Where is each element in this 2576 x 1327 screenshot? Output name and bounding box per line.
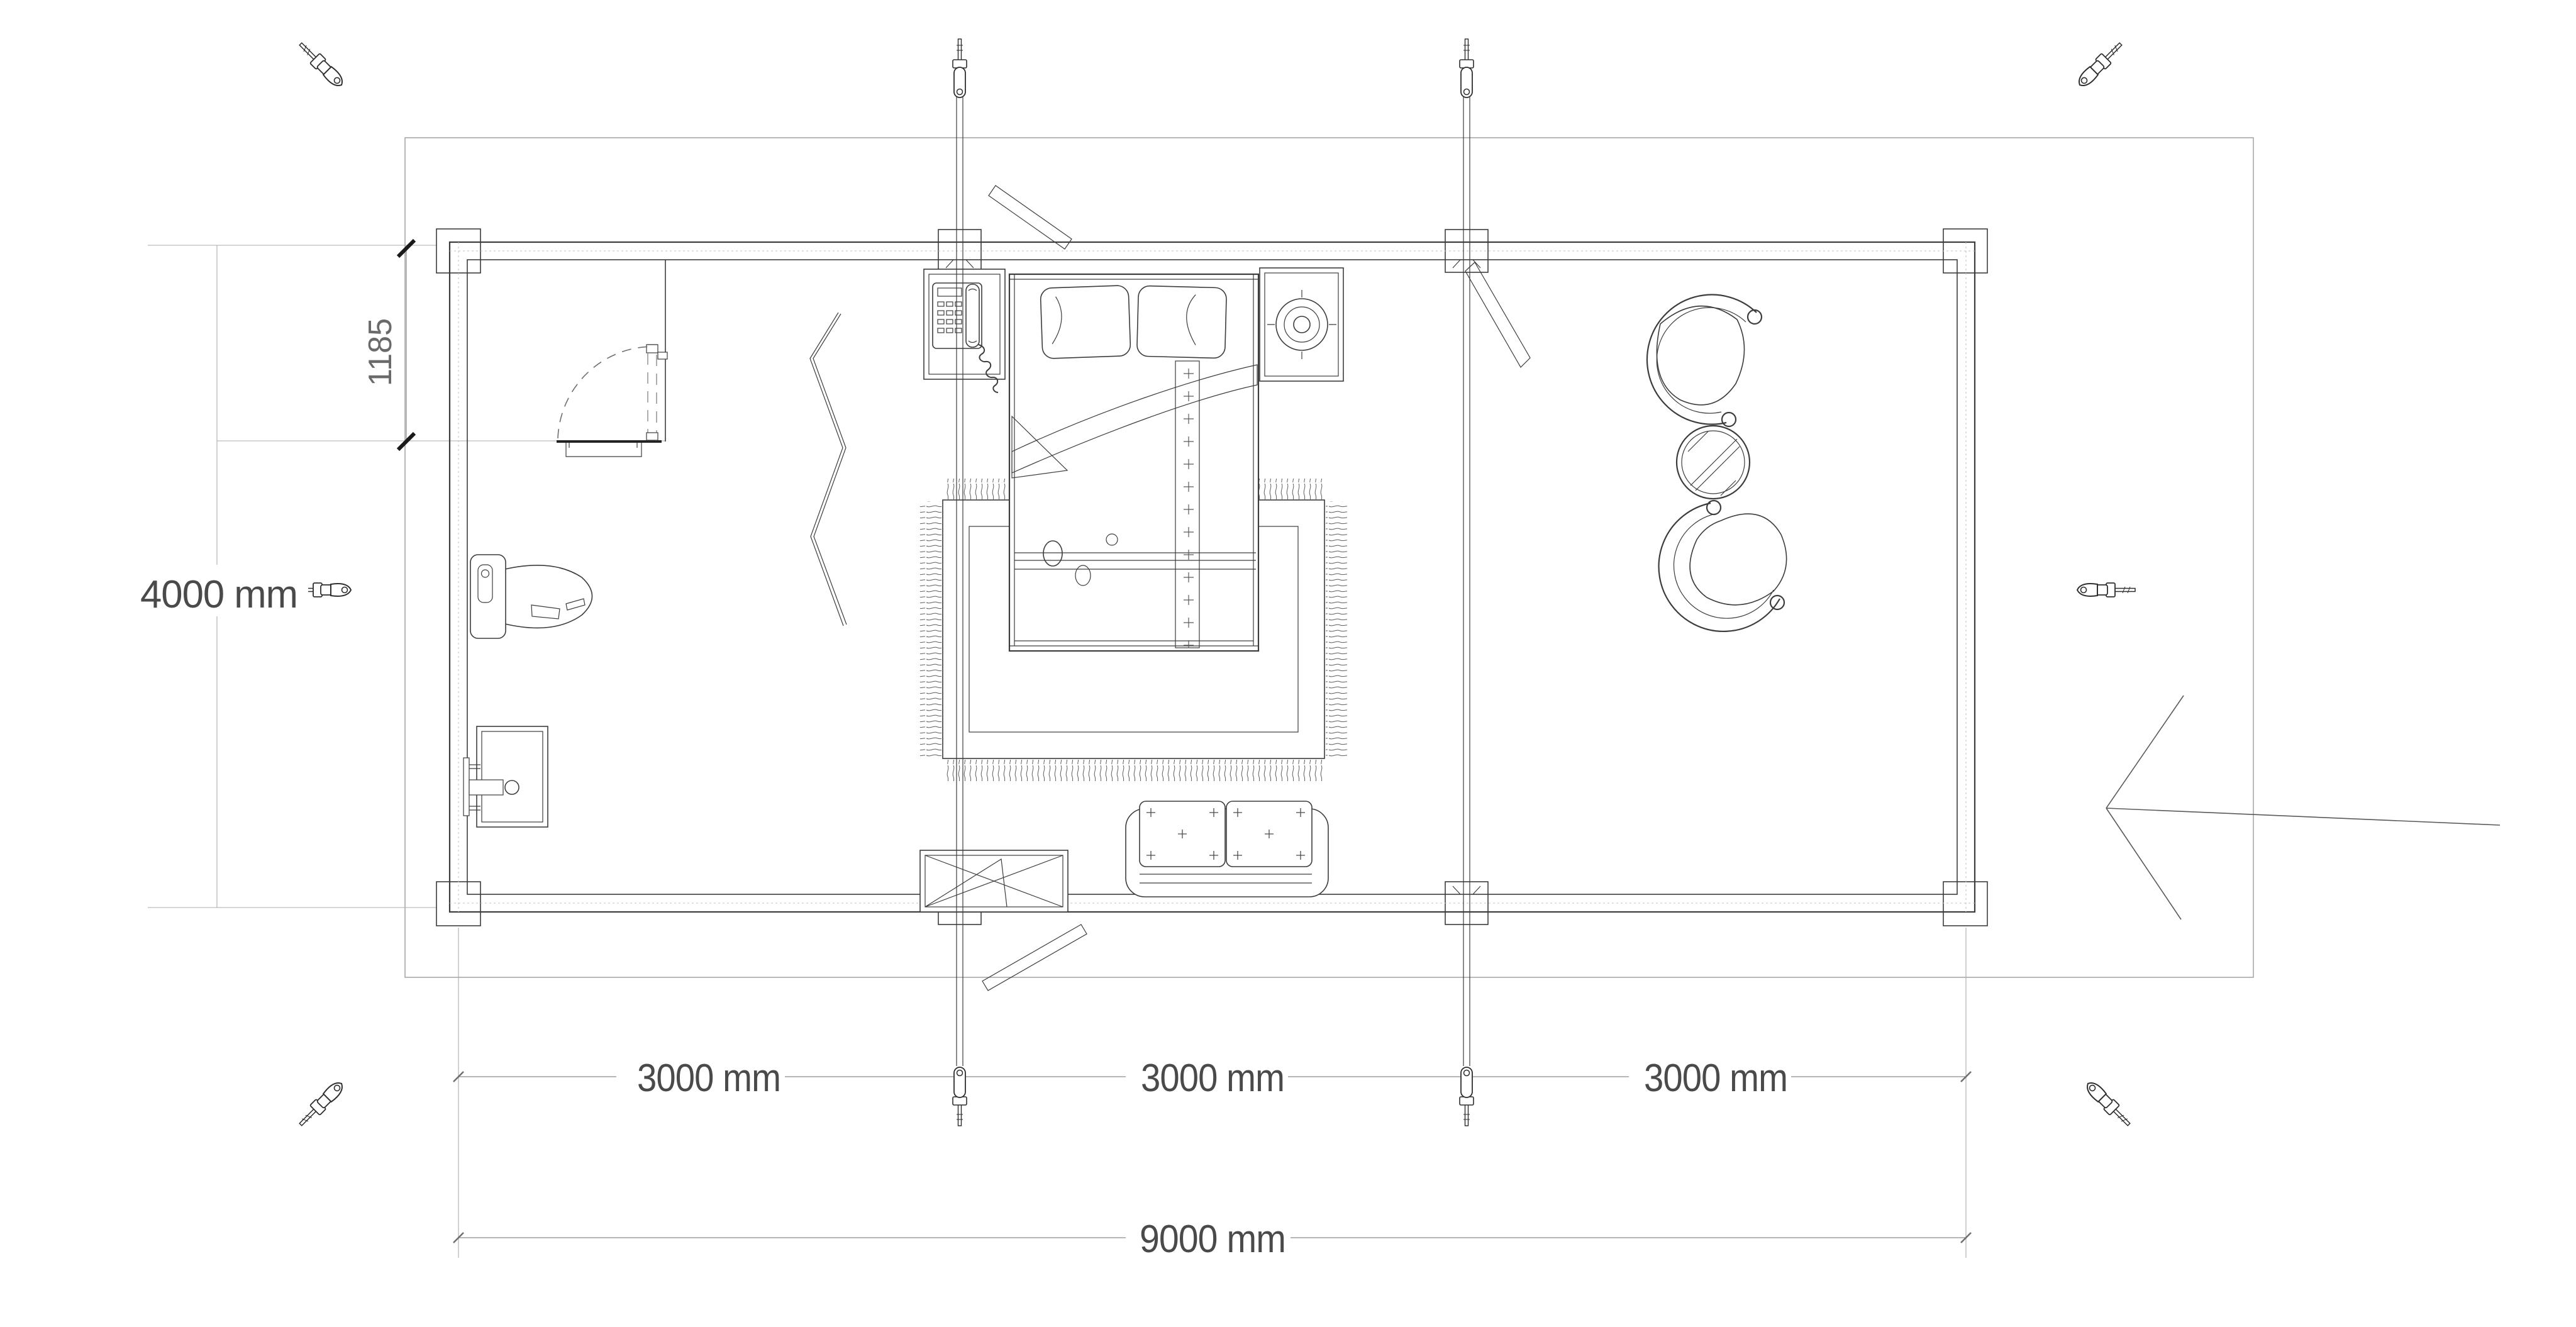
pillow — [1137, 286, 1227, 358]
papasan-chair-bottom — [1659, 501, 1787, 631]
entrance-arrow — [2106, 696, 2500, 919]
dim-label-partition-offset: 1185 — [362, 318, 399, 386]
folding-screen — [810, 313, 847, 626]
floor-plan-canvas: 3000 mm 3000 mm 3000 mm 9000 mm 4000 mm … — [0, 0, 2576, 1327]
sofa — [1126, 801, 1328, 897]
dim-label-overall-depth: 4000 mm — [140, 573, 297, 616]
screw-icon — [1460, 39, 1474, 97]
screw-icon — [2083, 1079, 2134, 1130]
bathroom-sink — [464, 726, 548, 827]
dim-label-bay-left: 3000 mm — [637, 1057, 780, 1100]
dim-label-bay-right: 3000 mm — [1644, 1057, 1787, 1100]
window-crossed-symbol — [920, 850, 1068, 912]
toilet — [470, 555, 592, 638]
bed-runner — [1175, 361, 1199, 648]
corner-joint-se — [1943, 882, 1987, 926]
side-table-round — [1677, 426, 1750, 499]
nightstand-left — [924, 269, 1005, 392]
pillow — [1040, 286, 1131, 359]
tie-rod-left — [953, 39, 967, 1126]
nightstand-right — [1260, 268, 1343, 381]
loose-plank — [989, 186, 1072, 249]
papasan-chair-top — [1647, 295, 1762, 426]
interior-door — [557, 345, 667, 457]
screw-icon — [2077, 583, 2135, 597]
tie-rod-right — [1460, 39, 1474, 1126]
double-bed — [1009, 274, 1258, 651]
screw-icon — [953, 39, 967, 97]
loose-plank — [982, 924, 1087, 991]
dim-label-bay-middle: 3000 mm — [1141, 1057, 1284, 1100]
screw-icon — [1460, 1067, 1474, 1126]
door-swing-arc — [558, 347, 652, 438]
screw-icon — [296, 1079, 347, 1130]
screw-icon — [953, 1067, 967, 1126]
dim-label-overall-width: 9000 mm — [1140, 1218, 1285, 1261]
screw-icon — [2075, 39, 2126, 90]
loose-plank — [1465, 262, 1530, 367]
screw-icon — [296, 39, 347, 90]
